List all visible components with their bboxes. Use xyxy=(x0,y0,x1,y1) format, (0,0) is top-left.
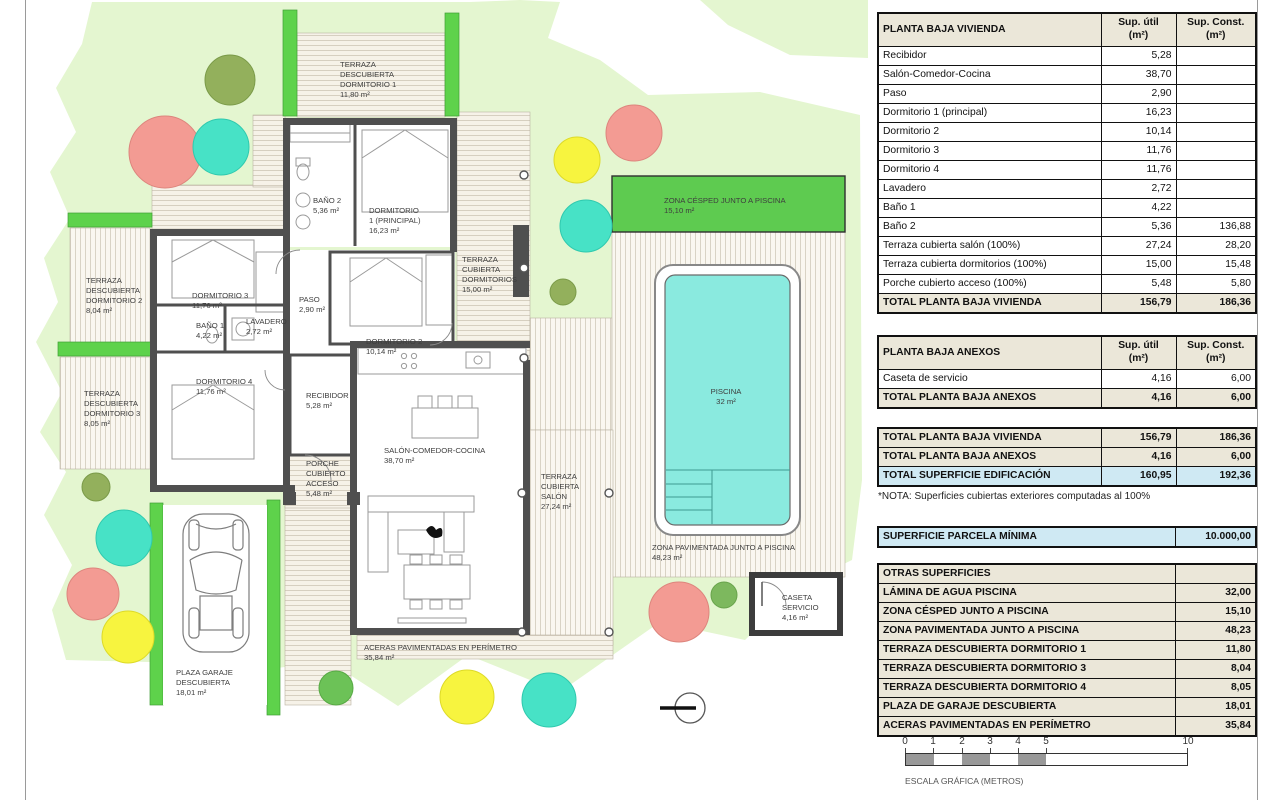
scale-tick-label: 5 xyxy=(1043,736,1049,747)
table-row: ACERAS PAVIMENTADAS EN PERÍMETRO35,84 xyxy=(878,717,1256,737)
label-terraza-descubierta-dorm3: TERRAZA DESCUBIERTA DORMITORIO 3 8,05 m² xyxy=(84,389,140,428)
table-row: Caseta de servicio4,166,00 xyxy=(878,370,1256,389)
label-plaza-garaje: PLAZA GARAJE DESCUBIERTA 18,01 m² xyxy=(176,668,233,698)
label-bano2: BAÑO 2 5,36 m² xyxy=(313,196,341,216)
label-lavadero: LAVADERO 2,72 m² xyxy=(246,317,287,337)
table-header-row: PLANTA BAJA VIVIENDA Sup. útil (m²) Sup.… xyxy=(878,13,1256,47)
table-row: ZONA PAVIMENTADA JUNTO A PISCINA48,23 xyxy=(878,622,1256,641)
covered-terrace-living-paving xyxy=(519,430,613,645)
tree-turquoise xyxy=(96,510,152,566)
tree-olive xyxy=(82,473,110,501)
col-sup-const: Sup. Const. (m²) xyxy=(1176,13,1256,47)
label-terraza-descubierta-dorm1: TERRAZA DESCUBIERTA DORMITORIO 1 11,80 m… xyxy=(340,60,396,99)
scale-tick-label: 0 xyxy=(902,736,908,747)
tree-yellow xyxy=(440,670,494,724)
nw-paving xyxy=(152,185,285,229)
table-row: TERRAZA DESCUBIERTA DORMITORIO 48,05 xyxy=(878,679,1256,698)
north-symbol xyxy=(660,693,705,723)
area-tables-panel: PLANTA BAJA VIVIENDA Sup. útil (m²) Sup.… xyxy=(877,12,1257,737)
table-row: LÁMINA DE AGUA PISCINA32,00 xyxy=(878,584,1256,603)
table-row: Dormitorio 411,76 xyxy=(878,161,1256,180)
tree-yellow xyxy=(102,611,154,663)
graphic-scale: 0 1 2 3 4 5 10 ESCALA GRÁFICA (METROS) xyxy=(905,736,1195,796)
scale-tick-label: 2 xyxy=(959,736,965,747)
scale-tick-label: 3 xyxy=(987,736,993,747)
table-row: Porche cubierto acceso (100%)5,485,80 xyxy=(878,275,1256,294)
label-aceras: ACERAS PAVIMENTADAS EN PERÍMETRO 35,84 m… xyxy=(364,643,517,663)
east-paving xyxy=(530,318,612,430)
label-porche: PORCHE CUBIERTO ACCESO 5,48 m² xyxy=(306,459,345,498)
table-otras-superficies: OTRAS SUPERFICIES LÁMINA DE AGUA PISCINA… xyxy=(877,563,1257,737)
table-row: Baño 25,36136,88 xyxy=(878,218,1256,237)
scale-tick-label: 4 xyxy=(1015,736,1021,747)
label-terraza-cubierta-dormitorios: TERRAZA CUBIERTA DORMITORIOS 15,00 m² xyxy=(462,255,517,294)
label-recibidor: RECIBIDOR 5,28 m² xyxy=(306,391,349,411)
table-row: Salón-Comedor-Cocina38,70 xyxy=(878,66,1256,85)
tree-salmon xyxy=(129,116,201,188)
label-piscina: PISCINA 32 m² xyxy=(700,387,752,407)
scale-tick-label: 1 xyxy=(930,736,936,747)
label-dormitorio2: DORMITORIO 2 10,14 m² xyxy=(366,337,422,357)
table-superficie-parcela: SUPERFICIE PARCELA MÍNIMA 10.000,00 xyxy=(877,526,1257,548)
table-resumen-totales: TOTAL PLANTA BAJA VIVIENDA156,79186,36 T… xyxy=(877,427,1257,487)
drawing-sheet: TERRAZA DESCUBIERTA DORMITORIO 1 11,80 m… xyxy=(0,0,1280,800)
tree-green xyxy=(319,671,353,705)
tree-turquoise xyxy=(193,119,249,175)
table-row: TERRAZA DESCUBIERTA DORMITORIO 38,04 xyxy=(878,660,1256,679)
table-planta-baja-vivienda: PLANTA BAJA VIVIENDA Sup. útil (m²) Sup.… xyxy=(877,12,1257,314)
table-row: Baño 14,22 xyxy=(878,199,1256,218)
label-caseta-servicio: CASETA SERVICIO 4,16 m² xyxy=(782,593,819,623)
col-sup-util: Sup. útil (m²) xyxy=(1101,13,1176,47)
sheet-border-right xyxy=(1257,0,1258,800)
label-salon: SALÓN-COMEDOR-COCINA 38,70 m² xyxy=(384,446,485,466)
table-row: Paso2,90 xyxy=(878,85,1256,104)
table-planta-baja-anexos: PLANTA BAJA ANEXOS Sup. útil (m²) Sup. C… xyxy=(877,335,1257,409)
tree-olive xyxy=(205,55,255,105)
footnote: *NOTA: Superficies cubiertas exteriores … xyxy=(878,491,1257,502)
table-row: Dormitorio 1 (principal)16,23 xyxy=(878,104,1256,123)
table-total-row: TOTAL PLANTA BAJA ANEXOS4,166,00 xyxy=(878,389,1256,409)
table-row: TERRAZA DESCUBIERTA DORMITORIO 111,80 xyxy=(878,641,1256,660)
label-bano1: BAÑO 1 4,22 m² xyxy=(196,321,224,341)
tree-turquoise xyxy=(560,200,612,252)
label-zona-pavimentada: ZONA PAVIMENTADA JUNTO A PISCINA 48,23 m… xyxy=(652,543,795,563)
table-title: PLANTA BAJA VIVIENDA xyxy=(878,13,1101,47)
table-row: Recibidor5,28 xyxy=(878,47,1256,66)
table-grand-total-row: TOTAL SUPERFICIE EDIFICACIÓN160,95192,36 xyxy=(878,467,1256,487)
table-row: Terraza cubierta salón (100%)27,2428,20 xyxy=(878,237,1256,256)
nw-paving-step xyxy=(253,115,285,187)
tree-olive xyxy=(711,582,737,608)
tree-salmon xyxy=(67,568,119,620)
label-dormitorio3: DORMITORIO 3 11,76 m² xyxy=(192,291,248,311)
table-total-row: TOTAL PLANTA BAJA VIVIENDA156,79186,36 xyxy=(878,294,1256,314)
tree-salmon xyxy=(649,582,709,642)
table-header-row: PLANTA BAJA ANEXOS Sup. útil (m²) Sup. C… xyxy=(878,336,1256,370)
scale-bar xyxy=(905,753,1188,766)
tree-turquoise xyxy=(522,673,576,727)
table-row: TOTAL PLANTA BAJA ANEXOS4,166,00 xyxy=(878,448,1256,467)
col-sup-util: Sup. útil (m²) xyxy=(1101,336,1176,370)
label-terraza-descubierta-dorm2: TERRAZA DESCUBIERTA DORMITORIO 2 8,04 m² xyxy=(86,276,142,315)
label-dormitorio4: DORMITORIO 4 11,76 m² xyxy=(196,377,252,397)
tree-yellow xyxy=(554,137,600,183)
label-paso: PASO 2,90 m² xyxy=(299,295,325,315)
scale-caption: ESCALA GRÁFICA (METROS) xyxy=(905,776,1023,786)
table-row: SUPERFICIE PARCELA MÍNIMA 10.000,00 xyxy=(878,527,1256,547)
table-row: Dormitorio 210,14 xyxy=(878,123,1256,142)
label-dormitorio1: DORMITORIO 1 (PRINCIPAL) 16,23 m² xyxy=(369,206,421,236)
label-zona-cesped: ZONA CÉSPED JUNTO A PISCINA 15,10 m² xyxy=(664,196,786,216)
tree-olive xyxy=(550,279,576,305)
table-row: Terraza cubierta dormitorios (100%)15,00… xyxy=(878,256,1256,275)
col-sup-const: Sup. Const. (m²) xyxy=(1176,336,1256,370)
tree-salmon xyxy=(606,105,662,161)
table-row: Lavadero2,72 xyxy=(878,180,1256,199)
table-row: TOTAL PLANTA BAJA VIVIENDA156,79186,36 xyxy=(878,428,1256,448)
table-title: OTRAS SUPERFICIES xyxy=(878,564,1175,584)
table-row: ZONA CÉSPED JUNTO A PISCINA15,10 xyxy=(878,603,1256,622)
table-header-row: OTRAS SUPERFICIES xyxy=(878,564,1256,584)
scale-tick-label: 10 xyxy=(1182,736,1193,747)
table-row: Dormitorio 311,76 xyxy=(878,142,1256,161)
label-terraza-cubierta-salon: TERRAZA CUBIERTA SALÓN 27,24 m² xyxy=(541,472,579,511)
lawn-corner xyxy=(700,0,868,58)
table-title: PLANTA BAJA ANEXOS xyxy=(878,336,1101,370)
table-row: PLAZA DE GARAJE DESCUBIERTA18,01 xyxy=(878,698,1256,717)
